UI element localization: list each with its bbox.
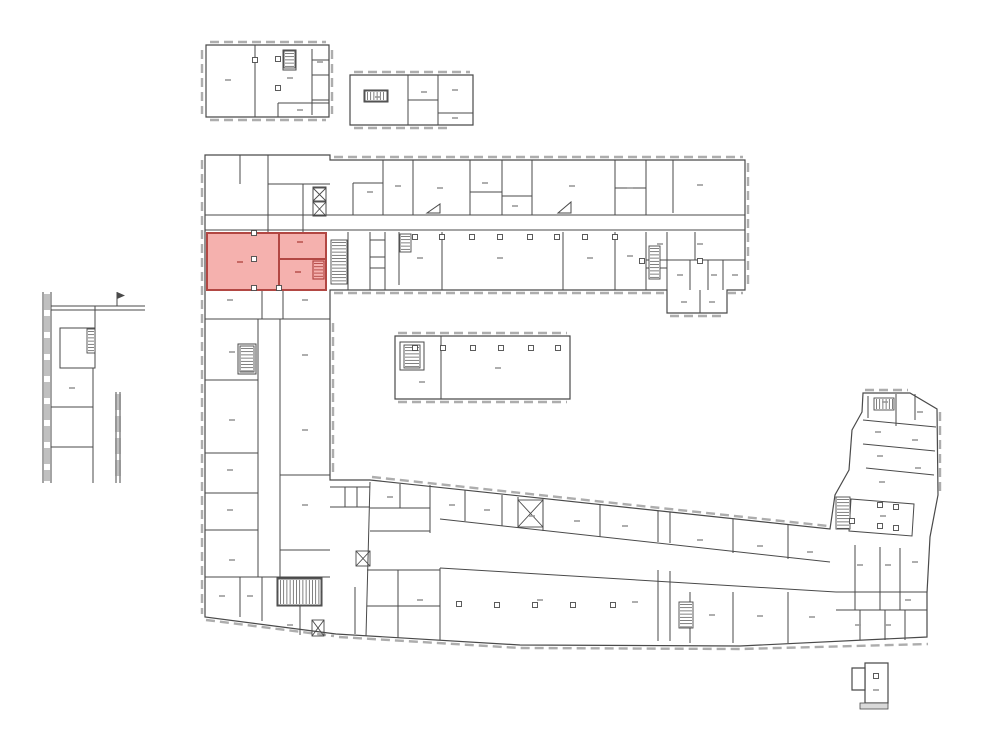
- room-label-mark: [437, 187, 443, 189]
- room-label-mark: [757, 615, 763, 617]
- room-label-mark: [537, 599, 543, 601]
- room-label-mark: [873, 689, 879, 691]
- room-label-mark: [229, 559, 235, 561]
- stair-icon: [836, 497, 850, 529]
- room-label-mark: [882, 401, 888, 403]
- room-label-mark: [417, 257, 423, 259]
- column-marker: [874, 674, 879, 679]
- room-label-mark: [529, 515, 535, 517]
- stair-icon-outline: [836, 497, 850, 529]
- stair-icon: [331, 240, 347, 284]
- room-label-mark: [497, 257, 503, 259]
- room-label-mark: [247, 595, 253, 597]
- building-outline: [395, 336, 570, 399]
- room-label-mark: [417, 599, 423, 601]
- column-marker: [555, 235, 560, 240]
- room-label-mark: [387, 496, 393, 498]
- room-label-mark: [225, 79, 231, 81]
- room-label-mark: [757, 545, 763, 547]
- column-marker: [528, 235, 533, 240]
- room-label-mark: [622, 525, 628, 527]
- column-marker: [571, 603, 576, 608]
- column-marker: [850, 519, 855, 524]
- column-marker: [470, 235, 475, 240]
- room-label-mark: [912, 439, 918, 441]
- highlighted-room-2[interactable]: [279, 233, 326, 259]
- stair-icon: [400, 234, 411, 252]
- column-marker: [556, 346, 561, 351]
- highlight-layer: [207, 233, 326, 290]
- column-marker: [440, 235, 445, 240]
- room-label-mark: [917, 411, 923, 413]
- building-outline: [206, 45, 329, 117]
- column-marker: [252, 286, 257, 291]
- room-label-mark: [912, 561, 918, 563]
- room-label-mark: [287, 624, 293, 626]
- room-label-mark: [857, 564, 863, 566]
- room-label-mark: [229, 351, 235, 353]
- stair-icon: [284, 51, 295, 68]
- room-label-mark: [367, 191, 373, 193]
- column-marker: [471, 346, 476, 351]
- room-label-mark: [419, 381, 425, 383]
- room-label-mark: [484, 509, 490, 511]
- room-label-mark: [227, 299, 233, 301]
- room-label-mark: [915, 467, 921, 469]
- room-label-mark: [880, 515, 886, 517]
- column-marker: [413, 346, 418, 351]
- column-marker: [457, 602, 462, 607]
- column-marker: [413, 235, 418, 240]
- room-label-mark: [229, 419, 235, 421]
- room-label-mark: [677, 274, 683, 276]
- column-marker: [441, 346, 446, 351]
- stair-icon: [278, 579, 321, 605]
- room-label-mark: [879, 481, 885, 483]
- stair-icon: [240, 346, 254, 372]
- room-label-mark: [69, 387, 75, 389]
- column-marker: [276, 86, 281, 91]
- column-marker: [878, 524, 883, 529]
- room-label-mark: [905, 599, 911, 601]
- room-label-mark: [587, 257, 593, 259]
- room-label-mark: [569, 185, 575, 187]
- column-marker: [613, 235, 618, 240]
- room-label-mark: [681, 301, 687, 303]
- column-marker: [529, 346, 534, 351]
- highlighted-stair-icon: [313, 261, 324, 279]
- room-label-mark: [495, 367, 501, 369]
- column-marker: [894, 505, 899, 510]
- room-label-mark: [297, 241, 303, 243]
- room-label-mark: [627, 187, 633, 189]
- room-label-mark: [709, 301, 715, 303]
- room-label-mark: [297, 109, 303, 111]
- room-label-mark: [885, 624, 891, 626]
- column-marker: [611, 603, 616, 608]
- room-label-mark: [302, 429, 308, 431]
- stair-icon: [649, 246, 660, 279]
- room-label-mark: [452, 89, 458, 91]
- room-label-mark: [877, 455, 883, 457]
- room-label-mark: [885, 564, 891, 566]
- room-label-mark: [227, 509, 233, 511]
- column-marker: [894, 526, 899, 531]
- room-label-mark: [657, 243, 663, 245]
- room-label-mark: [452, 117, 458, 119]
- column-marker: [495, 603, 500, 608]
- room-label-mark: [227, 469, 233, 471]
- room-label-mark: [807, 551, 813, 553]
- column-marker: [277, 286, 282, 291]
- room-label-mark: [302, 299, 308, 301]
- building-outline: [205, 155, 938, 646]
- room-label-mark: [711, 274, 717, 276]
- room-label-mark: [697, 539, 703, 541]
- room-label-mark: [421, 91, 427, 93]
- room-label-mark: [482, 182, 488, 184]
- room-label-mark: [237, 261, 243, 263]
- column-marker: [640, 259, 645, 264]
- building-outline: [852, 668, 865, 690]
- room-label-mark: [632, 601, 638, 603]
- room-label-mark: [449, 504, 455, 506]
- room-label-mark: [697, 243, 703, 245]
- stair-icon: [365, 91, 387, 101]
- column-marker: [698, 259, 703, 264]
- room-label-mark: [295, 271, 301, 273]
- room-label-mark: [317, 61, 323, 63]
- column-marker: [276, 57, 281, 62]
- column-marker: [252, 231, 257, 236]
- stair-icon: [679, 602, 693, 628]
- floorplan-canvas: [0, 0, 1000, 753]
- column-marker: [533, 603, 538, 608]
- column-marker: [878, 503, 883, 508]
- room-label-mark: [627, 255, 633, 257]
- room-label-mark: [875, 431, 881, 433]
- stair-icon: [874, 398, 894, 410]
- stair-icon: [87, 329, 95, 353]
- room-label-mark: [574, 520, 580, 522]
- room-label-mark: [809, 616, 815, 618]
- stair-icon-outline: [240, 346, 254, 372]
- entrance-sill: [860, 703, 888, 709]
- column-marker: [499, 346, 504, 351]
- building-outline: [865, 663, 888, 703]
- floor-plan-svg: [0, 0, 1000, 753]
- stair-icon-outline: [874, 398, 894, 410]
- column-marker: [583, 235, 588, 240]
- room-label-mark: [732, 274, 738, 276]
- room-label-mark: [512, 205, 518, 207]
- column-marker: [498, 235, 503, 240]
- room-label-mark: [697, 184, 703, 186]
- column-marker: [253, 58, 258, 63]
- room-label-mark: [855, 624, 861, 626]
- column-marker: [252, 257, 257, 262]
- room-label-mark: [709, 614, 715, 616]
- stair-icon-outline: [679, 602, 693, 628]
- room-label-mark: [302, 504, 308, 506]
- flag-marker-icon: [117, 292, 125, 299]
- room-label-mark: [287, 77, 293, 79]
- room-label-mark: [395, 185, 401, 187]
- room-label-mark: [302, 354, 308, 356]
- room-label-mark: [375, 96, 381, 98]
- room-label-mark: [219, 595, 225, 597]
